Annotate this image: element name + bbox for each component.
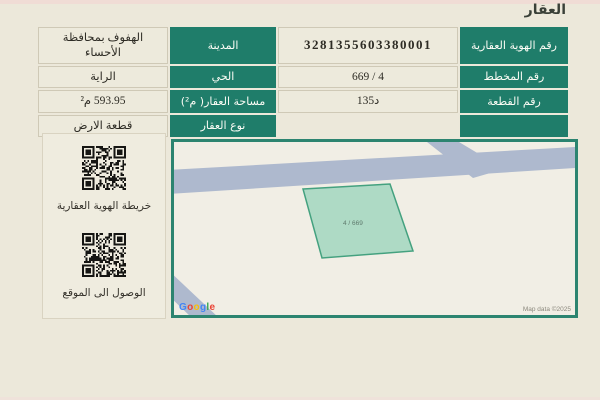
- label-parcel-number: رقم القطعة: [460, 90, 568, 113]
- label-district: الحي: [170, 66, 276, 88]
- value-parcel-number: د135: [278, 90, 458, 113]
- parcel-label: 4 / 669: [343, 220, 363, 227]
- value-property-id: 3281355603380001: [278, 27, 458, 64]
- map-attribution: Map data ©2025: [523, 306, 571, 313]
- label-property-id: رقم الهوية العقارية: [460, 27, 568, 64]
- label-city: المدينة: [170, 27, 276, 64]
- empty-value-cell: [278, 115, 458, 137]
- map-canvas: 4 / 669: [174, 142, 575, 315]
- label-area: مساحة العقار( م²): [170, 90, 276, 113]
- location-access-qr-label: الوصول الى الموقع: [58, 287, 149, 300]
- location-access-qr-code: [82, 233, 126, 277]
- value-plan-number: 4 / 669: [278, 66, 458, 88]
- value-city: الهفوف بمحافظة الأحساء: [38, 27, 168, 64]
- identity-map-qr-label: خريطة الهوية العقارية: [53, 200, 155, 213]
- value-district: الراية: [38, 66, 168, 88]
- google-logo: Google: [179, 302, 215, 313]
- page-title: العقار: [525, 2, 566, 18]
- empty-header-cell: [460, 115, 568, 137]
- identity-map-qr-code: [82, 146, 126, 190]
- parcel-map: 4 / 669 Google Map data ©2025: [171, 139, 578, 318]
- label-property-type: نوع العقار: [170, 115, 276, 137]
- page-top-edge: [0, 0, 600, 4]
- label-plan-number: رقم المخطط: [460, 66, 568, 88]
- property-info-table: رقم الهوية العقارية 3281355603380001 الم…: [38, 27, 568, 137]
- qr-sidebar-panel: خريطة الهوية العقارية الوصول الى الموقع: [42, 133, 166, 319]
- value-area: 593.95 م²: [38, 90, 168, 113]
